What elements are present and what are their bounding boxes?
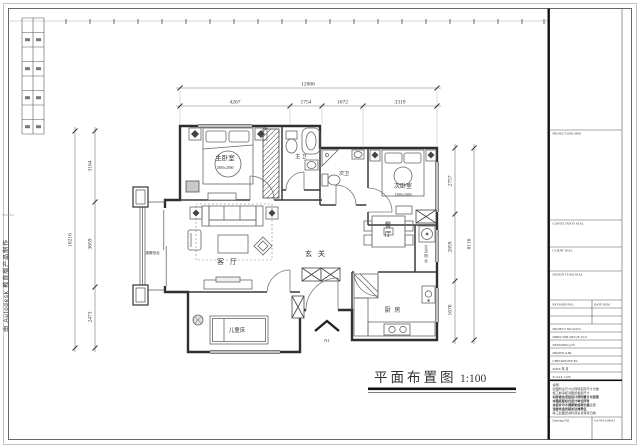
service-balcony-fixtures: [419, 226, 435, 242]
dim-top-3: 1672: [337, 100, 348, 106]
label-service-balcony: 生活阳台: [424, 244, 428, 263]
label-second-bedroom: 次卧室: [394, 182, 412, 190]
dim-right-2: 2859: [448, 241, 454, 252]
tb-job-no: Job NO 0206A3: [594, 419, 615, 423]
tb-project-no: PROJECT NO A2013: [553, 327, 582, 331]
tb-rev-no: REVISION NO.: [553, 303, 574, 307]
dim-right-1: 2757: [448, 175, 454, 186]
balcony-piers: [133, 187, 148, 305]
master-bath-fixtures: [286, 128, 320, 170]
title-block: PROJECT/2F02 0908 CONSULTANTS SEAL CLIEN…: [548, 9, 623, 440]
revision-strip: [22, 18, 44, 134]
label-second-bedroom-size: 1500x2000: [394, 193, 411, 197]
autodesk-watermark: 由 Autodesk 教育版产品制作: [2, 239, 10, 332]
label-dining: 餐厅: [385, 220, 392, 238]
dim-left-3: 2473: [88, 311, 94, 322]
entry-mark-label: N1: [324, 338, 330, 343]
tb-checked: CHECKED BY B.L: [553, 359, 579, 363]
dim-top-1: 4267: [230, 100, 241, 106]
dim-top-total: 12006: [301, 82, 315, 88]
tb-scale-row: SCALE 1:100: [553, 375, 572, 379]
tb-rev-date: DATE REM: [594, 303, 610, 307]
dim-right-total: 8116: [467, 238, 473, 249]
tb-top-label: PROJECT/2F02 0908: [553, 132, 581, 136]
label-kids-bed: 儿童床: [229, 326, 246, 334]
tb-section2: CLIENT SEAL: [553, 249, 573, 253]
kitchen-fixtures: [354, 274, 435, 336]
label-view-balcony: 观景阳台: [145, 250, 160, 255]
tb-drawing-no: Drawing NO: [553, 419, 570, 423]
label-living-room: 客 厅: [217, 257, 239, 266]
ruler-ticks: [66, 19, 544, 24]
cad-floor-plan-sheet: 由 Autodesk 教育版产品制作: [0, 0, 640, 448]
living-room-furniture: [188, 204, 278, 289]
entry-arrow: N1: [315, 321, 339, 343]
dim-left-2: 3659: [88, 238, 94, 249]
tb-designed: DESIGNED p.05: [553, 343, 576, 347]
second-bath-fixtures: [322, 150, 364, 186]
windows: [140, 125, 439, 354]
dim-left-1: 3164: [88, 160, 94, 171]
tb-section1: CONSULTANTS SEAL: [553, 222, 584, 226]
dim-top-4: 3319: [395, 100, 406, 106]
dim-top-2: 1754: [301, 100, 312, 106]
second-bedroom-furniture: [370, 150, 436, 214]
dim-left-total: 10216: [68, 233, 74, 247]
label-second-bath: 次卫: [339, 170, 349, 177]
tb-note-7: 竣工后图纸资料须妥善保存归档: [553, 410, 596, 415]
label-master-bedroom-size: 1800x2000: [216, 166, 233, 170]
tb-drawn: DRAWN A.BL: [553, 351, 573, 355]
tb-date-row: DATE 年 月: [553, 366, 569, 371]
view-title-scale: 1:100: [460, 373, 486, 385]
dim-right-3: 1670: [448, 304, 454, 315]
view-title-text: 平面布置图: [374, 370, 457, 385]
drawing-canvas: 由 Autodesk 教育版产品制作: [0, 0, 640, 448]
tb-section3: DESIGN TEAM SEAL: [553, 273, 583, 277]
label-kitchen: 厨 房: [385, 306, 402, 314]
page-borders: [2, 4, 637, 445]
master-bed-furniture: [186, 128, 267, 200]
tb-director: DIRECTOR-DES 2F-25-0: [553, 335, 587, 339]
view-title: 平面布置图 1:100: [368, 370, 516, 393]
floor-plan: N1 主卧室 1800x2000 主 卫 次卫 次卧室 1500x2000 客 …: [133, 125, 439, 354]
label-foyer: 玄 关: [305, 249, 327, 258]
label-master-bedroom: 主卧室: [215, 153, 235, 162]
label-master-bath: 主 卫: [295, 153, 306, 160]
